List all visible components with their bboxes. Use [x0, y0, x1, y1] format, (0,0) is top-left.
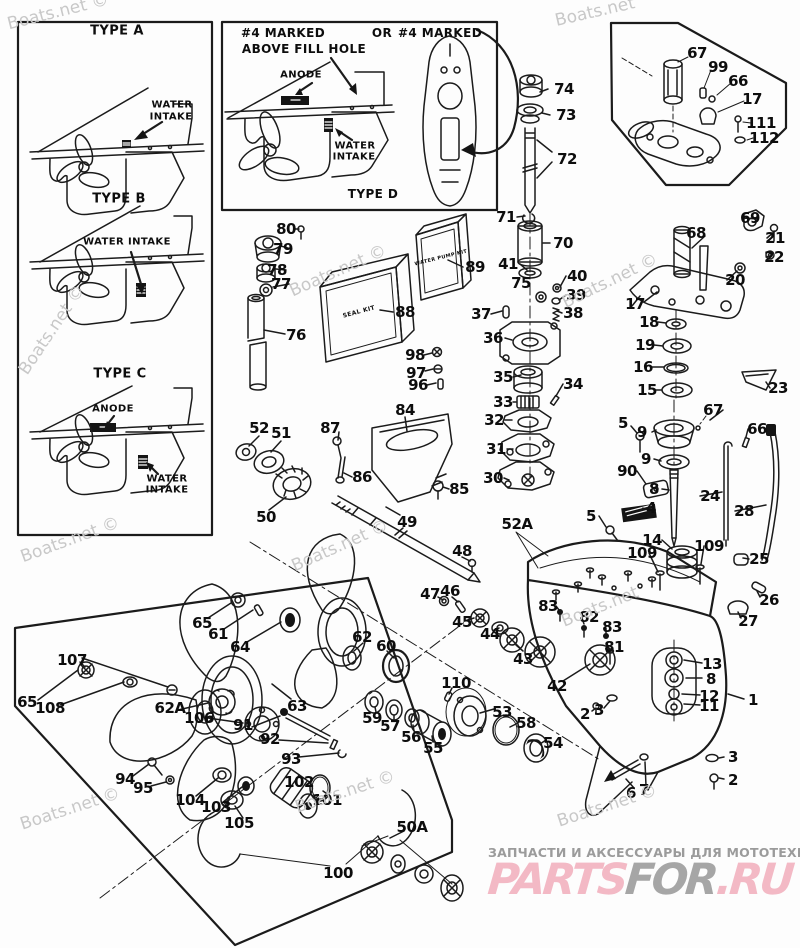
brand-parts: PARTS — [486, 855, 628, 905]
type-c-figure — [30, 386, 204, 494]
parts-diagram-page: TYPE AWATERINTAKETYPE BWATER INTAKETYPE … — [0, 0, 800, 948]
drive-hub-group — [100, 618, 470, 898]
water-pump-kit-box — [416, 214, 471, 300]
brand-for: FOR — [623, 855, 718, 905]
brand-ru: .RU — [714, 855, 794, 905]
anode-bracket — [333, 414, 452, 502]
thrust-hub-kit — [198, 790, 463, 901]
hex-anode-assembly — [622, 57, 753, 166]
diagram-art — [0, 0, 800, 948]
prop-hardware — [78, 593, 300, 695]
driveshaft-stack — [498, 75, 561, 490]
seal-kit-box — [320, 254, 414, 362]
partsfor-footer: ЗАПЧАСТИ И АКСЕССУАРЫ ДЛЯ МОТОТЕХНИКИ PA… — [488, 845, 800, 901]
pivot-housing-assembly — [630, 210, 778, 398]
deck-studs — [553, 568, 656, 600]
partsfor-logo: PARTSFOR.RU — [486, 860, 800, 901]
type-d-figure — [225, 30, 518, 206]
type-b-figure — [30, 206, 204, 324]
type-a-figure — [30, 88, 204, 214]
pinion-gear-group — [234, 442, 314, 504]
bearing-carrier-column — [248, 226, 304, 390]
propeller-upper — [295, 534, 366, 708]
